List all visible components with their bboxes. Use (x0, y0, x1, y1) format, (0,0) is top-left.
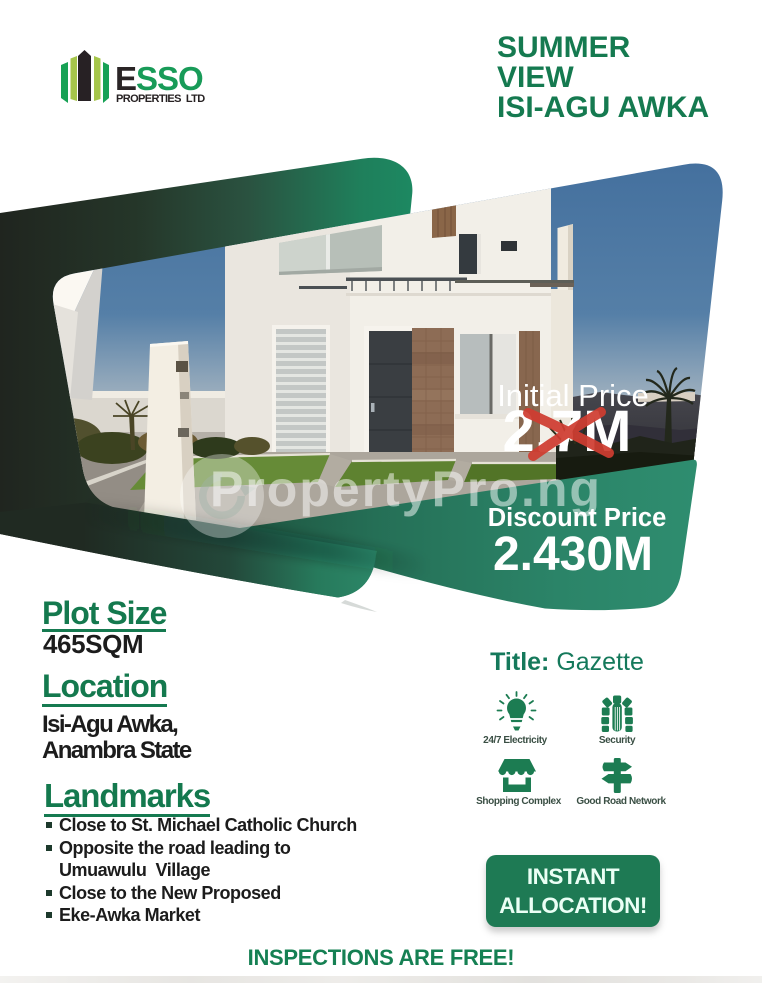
svg-text:24/7 Electricity: 24/7 Electricity (483, 735, 547, 746)
svg-text:Good Road Network: Good Road Network (576, 796, 666, 807)
svg-text:Security: Security (599, 735, 636, 746)
svg-text:Shopping Complex: Shopping Complex (476, 796, 562, 807)
